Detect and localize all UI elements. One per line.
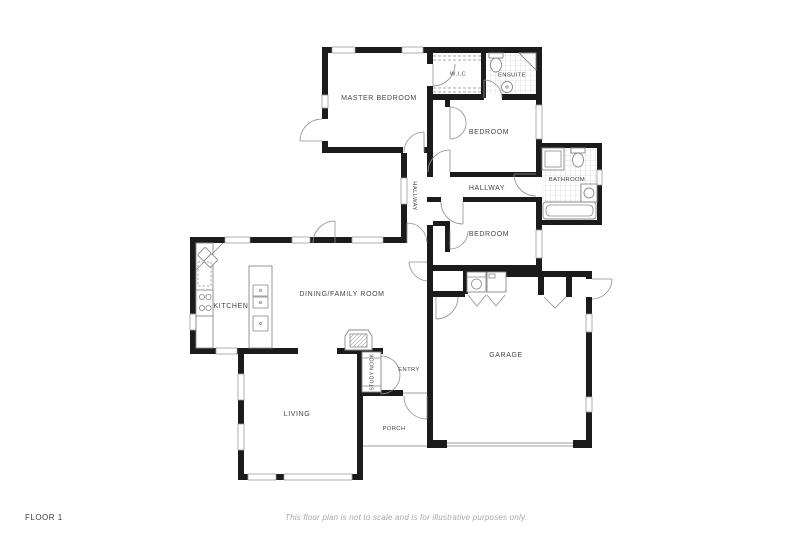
floor-label: FLOOR 1 [25, 513, 63, 522]
garage-door [447, 443, 573, 446]
toilet-tank [571, 148, 585, 153]
label-living: LIVING [284, 411, 311, 418]
label-bedroom-lower: BEDROOM [469, 231, 509, 238]
dryer [487, 272, 506, 292]
label-bedroom-upper: BEDROOM [469, 129, 509, 136]
label-master-bedroom: MASTER BEDROOM [341, 95, 417, 102]
label-dining-family: DINING/FAMILY ROOM [299, 291, 384, 298]
label-ensuite: ENSUITE [498, 73, 526, 79]
kitchen-island [249, 266, 272, 348]
toilet-tank [489, 53, 503, 58]
floor-plan-canvas: MASTER BEDROOM W.I.C ENSUITE BEDROOM HAL… [0, 0, 800, 533]
porch-outline [363, 393, 427, 446]
room-labels: MASTER BEDROOM W.I.C ENSUITE BEDROOM HAL… [214, 72, 586, 433]
bathtub [543, 202, 596, 219]
toilet-bowl [573, 153, 584, 167]
toilet-bowl [491, 58, 502, 72]
sink [584, 188, 594, 198]
label-bathroom: BATHROOM [549, 177, 585, 183]
disclaimer-text: This floor plan is not to scale and is f… [285, 513, 527, 522]
label-hallway-vertical: HALLWAY [411, 181, 417, 210]
stove [196, 290, 213, 316]
kitchen-fixtures [196, 243, 272, 348]
label-kitchen: KITCHEN [214, 303, 249, 310]
pedestal-sink [502, 82, 513, 93]
label-study-nook: STUDY NOOK [370, 353, 376, 390]
label-garage: GARAGE [489, 352, 523, 359]
floor-plan-page: MASTER BEDROOM W.I.C ENSUITE BEDROOM HAL… [0, 0, 800, 533]
label-porch: PORCH [383, 426, 406, 432]
label-entry: ENTRY [398, 367, 420, 373]
footer: FLOOR 1 This floor plan is not to scale … [25, 513, 527, 522]
label-wic: W.I.C [450, 72, 466, 78]
label-hallway: HALLWAY [469, 185, 505, 192]
fireplace [345, 330, 372, 350]
